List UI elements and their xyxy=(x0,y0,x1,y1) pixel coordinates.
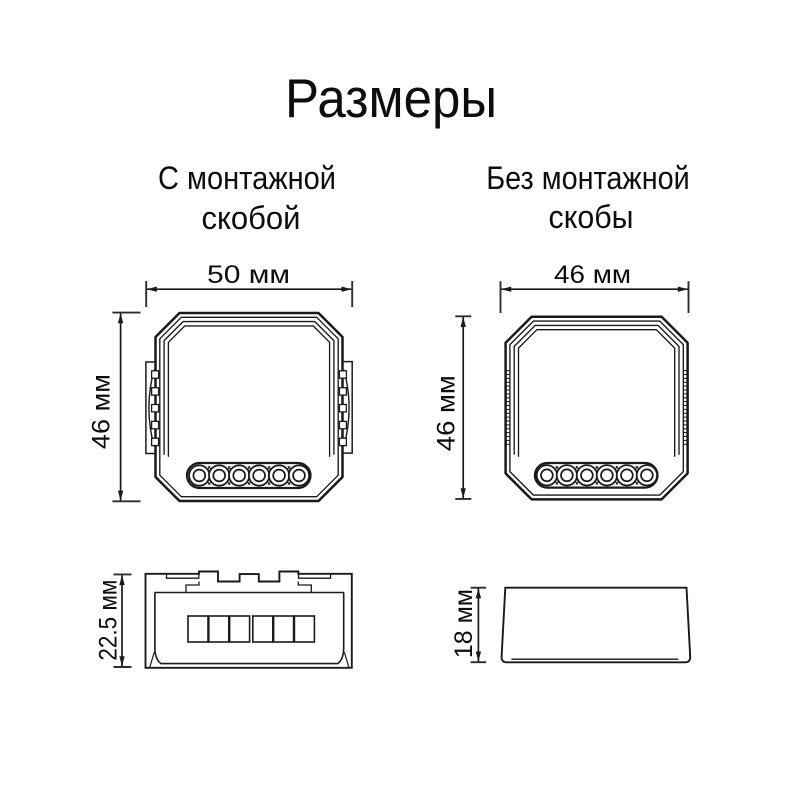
svg-text:22.5 мм: 22.5 мм xyxy=(95,580,123,661)
svg-text:18 мм: 18 мм xyxy=(450,589,478,658)
svg-text:С монтажной: С монтажной xyxy=(158,160,336,196)
svg-text:Размеры: Размеры xyxy=(285,67,497,129)
svg-text:46 мм: 46 мм xyxy=(433,375,461,451)
svg-text:46 мм: 46 мм xyxy=(554,261,631,289)
svg-text:46 мм: 46 мм xyxy=(88,374,116,449)
svg-text:скобы: скобы xyxy=(549,199,634,235)
svg-text:скобой: скобой xyxy=(202,200,301,236)
svg-text:50 мм: 50 мм xyxy=(207,261,290,289)
svg-text:Без монтажной: Без монтажной xyxy=(486,160,690,196)
